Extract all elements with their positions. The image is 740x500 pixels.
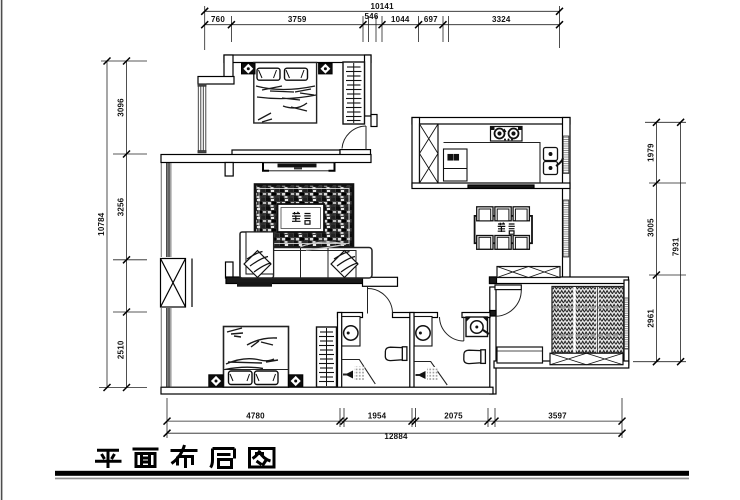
- svg-text:1044: 1044: [391, 15, 410, 24]
- svg-text:1979: 1979: [647, 143, 656, 162]
- svg-text:760: 760: [211, 15, 225, 24]
- svg-text:2075: 2075: [444, 412, 463, 421]
- svg-text:2510: 2510: [117, 340, 126, 359]
- svg-text:10784: 10784: [97, 212, 106, 236]
- svg-text:3759: 3759: [288, 15, 307, 24]
- svg-text:7931: 7931: [672, 237, 681, 256]
- svg-text:3096: 3096: [117, 98, 126, 117]
- svg-text:4780: 4780: [246, 412, 265, 421]
- svg-text:3324: 3324: [492, 15, 511, 24]
- svg-text:3005: 3005: [647, 218, 656, 237]
- svg-text:546: 546: [365, 12, 379, 21]
- svg-text:3256: 3256: [117, 197, 126, 216]
- svg-text:10141: 10141: [370, 2, 394, 11]
- svg-text:2961: 2961: [647, 309, 656, 328]
- svg-text:3597: 3597: [548, 412, 567, 421]
- svg-text:1954: 1954: [368, 412, 387, 421]
- svg-text:12884: 12884: [384, 432, 408, 441]
- svg-text:697: 697: [424, 15, 438, 24]
